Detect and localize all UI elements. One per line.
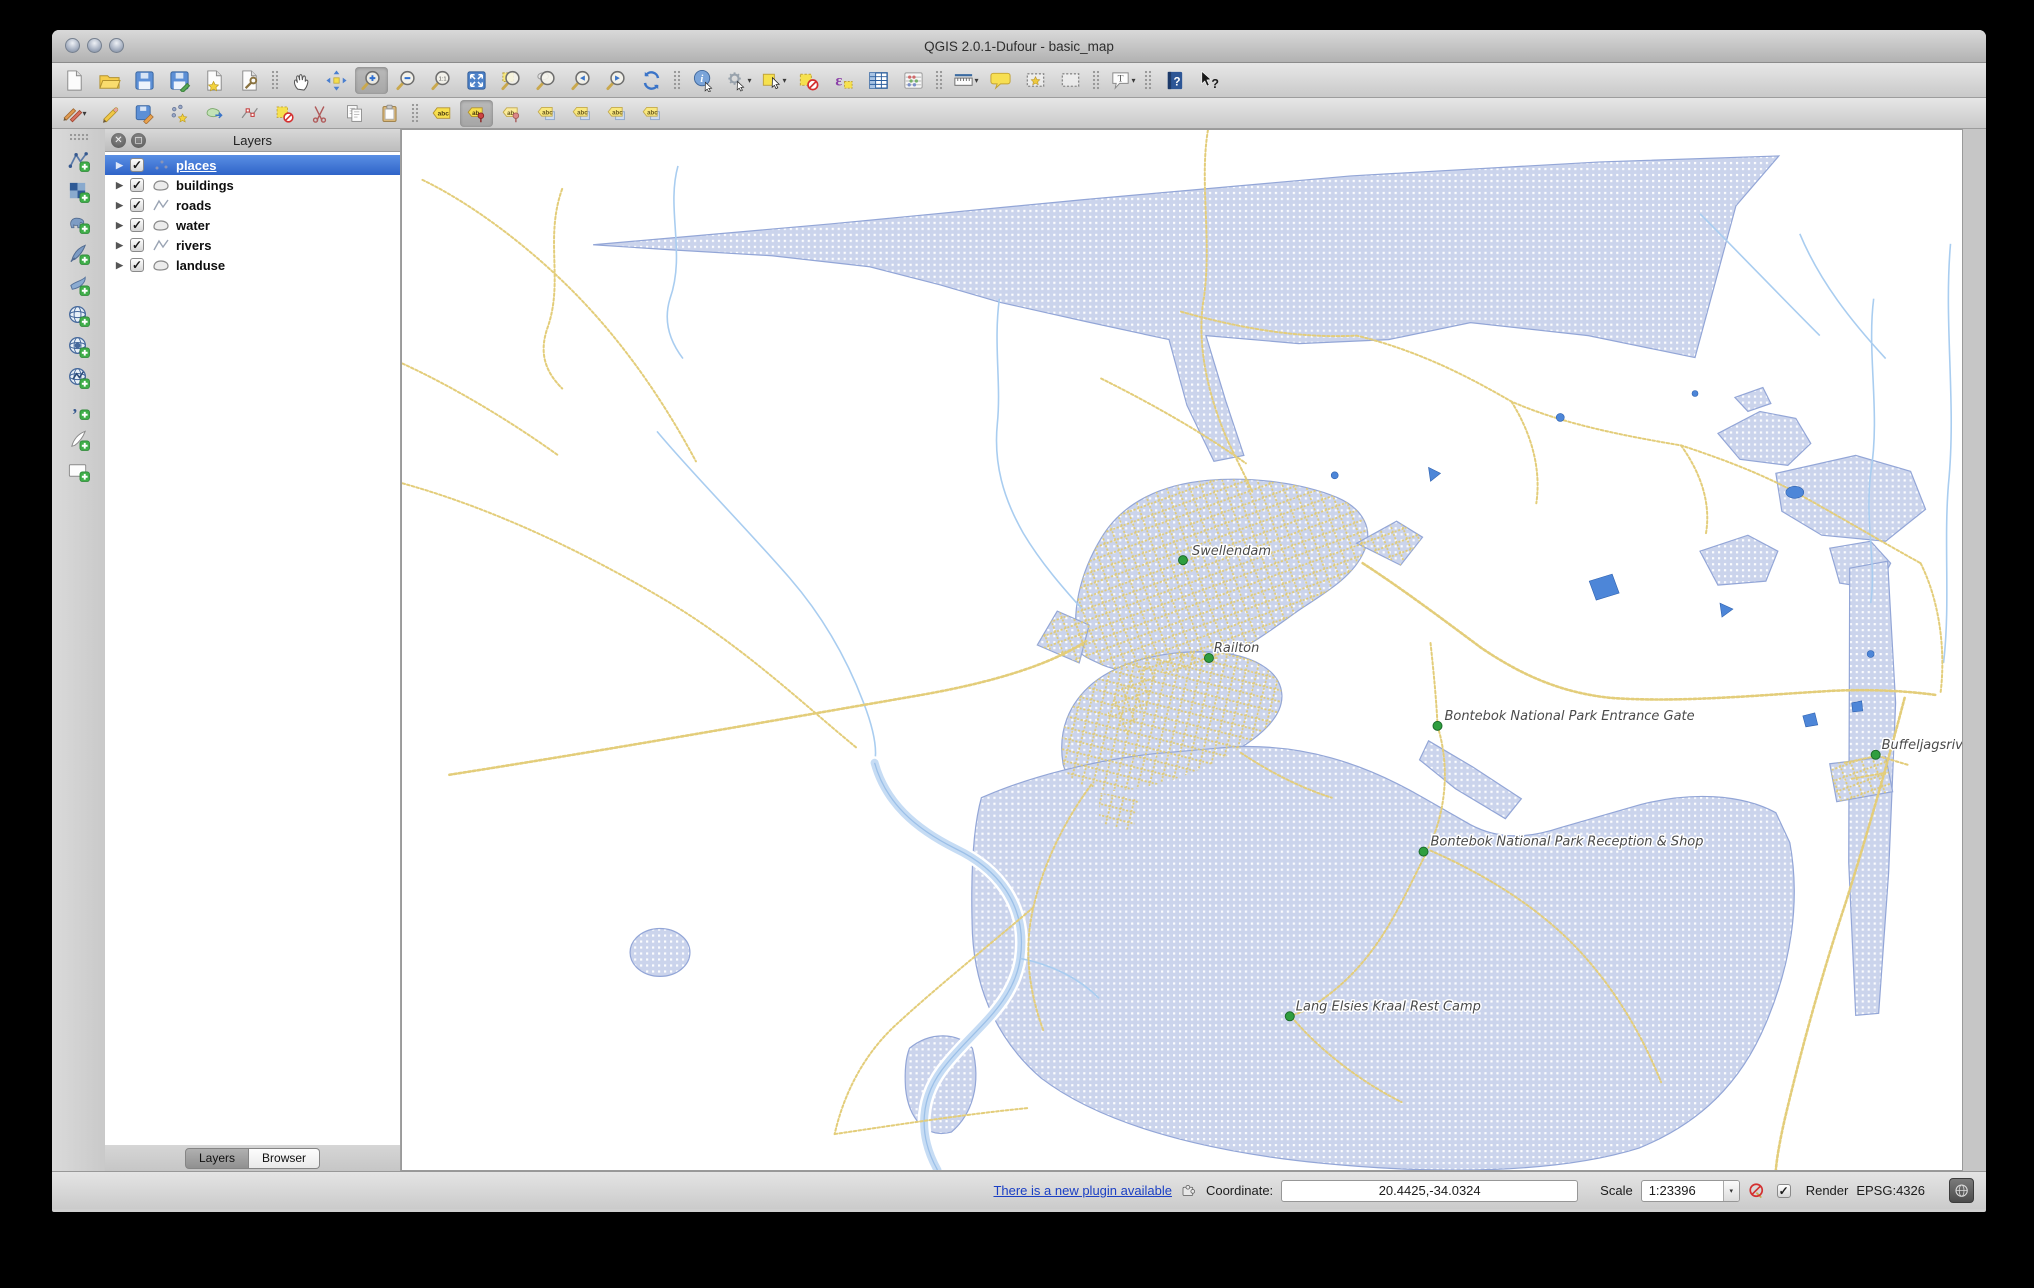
- layer-line-icon: [151, 238, 171, 252]
- coordinate-input[interactable]: 20.4425,-34.0324: [1281, 1180, 1578, 1202]
- open-attribute-table-button[interactable]: [862, 67, 895, 94]
- new-project-button[interactable]: [58, 67, 91, 94]
- pan-map-button[interactable]: [285, 67, 318, 94]
- chevron-down-icon: ▾: [1131, 76, 1135, 85]
- toolbar-drag-handle[interactable]: [271, 70, 280, 90]
- layer-checkbox[interactable]: ✓: [130, 218, 144, 232]
- map-tips-button[interactable]: [984, 67, 1017, 94]
- layer-item-roads[interactable]: ▶✓roads: [105, 195, 400, 215]
- layer-tree: ▶✓places▶✓buildings▶✓roads▶✓water▶✓river…: [105, 152, 400, 1145]
- layer-expand-arrow[interactable]: ▶: [112, 260, 127, 271]
- deselect-all-icon: [797, 69, 820, 92]
- toolbar-drag-handle[interactable]: [1092, 70, 1101, 90]
- toolbar-drag-handle[interactable]: [411, 103, 420, 123]
- labeling-options-button[interactable]: [425, 100, 458, 127]
- toolbar-drag-handle[interactable]: [673, 70, 682, 90]
- add-mssql-layer-icon: [67, 273, 90, 296]
- zoom-out-button[interactable]: [390, 67, 423, 94]
- place-marker: [1204, 653, 1213, 662]
- layer-line-icon: [151, 198, 171, 212]
- save-project-button[interactable]: [128, 67, 161, 94]
- qgis-window: QGIS 2.0.1-Dufour - basic_map ▾▾▾▾ ▾ ✕ ◻…: [52, 30, 1986, 1212]
- new-spatialite-layer-icon: [67, 428, 90, 451]
- change-label-properties-button[interactable]: [635, 100, 668, 127]
- zoom-full-icon: [465, 69, 488, 92]
- run-feature-action-button[interactable]: ▾: [722, 67, 755, 94]
- add-vector-layer-icon: [67, 149, 90, 172]
- delete-selected-icon: [274, 103, 295, 124]
- refresh-map-button[interactable]: [635, 67, 668, 94]
- add-mssql-layer-button[interactable]: [62, 271, 95, 298]
- show-pinned-labels-icon: [501, 103, 522, 124]
- save-layer-edits-button[interactable]: [128, 100, 161, 127]
- panel-float-button[interactable]: ◻: [131, 133, 146, 148]
- highlight-label-button[interactable]: [530, 100, 563, 127]
- layer-item-water[interactable]: ▶✓water: [105, 215, 400, 235]
- layer-label: roads: [176, 198, 211, 213]
- window-title: QGIS 2.0.1-Dufour - basic_map: [924, 39, 1114, 54]
- place-label: Railton: [1214, 641, 1259, 656]
- manage-layers-toolbar: [52, 129, 105, 1171]
- crs-label: EPSG:4326: [1856, 1183, 1925, 1198]
- help-icon: [1163, 69, 1186, 92]
- layer-expand-arrow[interactable]: ▶: [112, 220, 127, 231]
- measure-button[interactable]: ▾: [949, 67, 982, 94]
- main-toolbar: ▾▾▾▾: [52, 63, 1986, 98]
- pan-map-icon: [290, 69, 313, 92]
- move-label-button[interactable]: [565, 100, 598, 127]
- layer-label: water: [176, 218, 210, 233]
- minimize-window-button[interactable]: [87, 38, 102, 53]
- chevron-down-icon: ▾: [974, 76, 978, 85]
- rotate-label-icon: [606, 103, 627, 124]
- layer-label: rivers: [176, 238, 211, 253]
- toolbar-drag-handle[interactable]: [935, 70, 944, 90]
- panel-tabs: LayersBrowser: [105, 1145, 400, 1171]
- whats-this-icon: [1198, 69, 1221, 92]
- cut-features-icon: [309, 103, 330, 124]
- move-feature-button[interactable]: [198, 100, 231, 127]
- open-project-button[interactable]: [93, 67, 126, 94]
- layer-polygon-icon: [151, 178, 171, 192]
- add-wfs-layer-icon: [67, 366, 90, 389]
- layer-checkbox[interactable]: ✓: [130, 198, 144, 212]
- measure-icon: [952, 69, 975, 92]
- select-by-expression-button[interactable]: [827, 67, 860, 94]
- scale-combo[interactable]: 1:23396 ▾: [1641, 1180, 1740, 1202]
- zoom-to-selection-button[interactable]: [495, 67, 528, 94]
- save-project-as-icon: [168, 69, 191, 92]
- zoom-to-layer-icon: [535, 69, 558, 92]
- add-delimited-text-layer-button[interactable]: [62, 395, 95, 422]
- layers-panel-header: ✕ ◻ Layers: [105, 129, 400, 152]
- paste-features-icon: [379, 103, 400, 124]
- add-feature-button[interactable]: [163, 100, 196, 127]
- map-svg: SwellendamRailtonBontebok National Park …: [402, 130, 1962, 1170]
- new-bookmark-button[interactable]: [1019, 67, 1052, 94]
- panel-close-button[interactable]: ✕: [111, 133, 126, 148]
- labeling-options-icon: [431, 103, 452, 124]
- text-annotation-button[interactable]: ▾: [1106, 67, 1139, 94]
- node-tool-icon: [239, 103, 260, 124]
- chevron-down-icon: ▾: [747, 76, 751, 85]
- select-by-expression-icon: [832, 69, 855, 92]
- tab-layers[interactable]: Layers: [185, 1148, 249, 1169]
- place-label: Bontebok National Park Entrance Gate: [1444, 709, 1694, 724]
- layer-item-places[interactable]: ▶✓places: [105, 155, 400, 175]
- crs-status-button[interactable]: [1949, 1178, 1974, 1203]
- delete-selected-button[interactable]: [268, 100, 301, 127]
- move-feature-icon: [204, 103, 225, 124]
- rotate-label-button[interactable]: [600, 100, 633, 127]
- layer-label: places: [176, 158, 216, 173]
- current-edits-button[interactable]: ▾: [58, 100, 91, 127]
- pan-to-selection-button[interactable]: [320, 67, 353, 94]
- place-marker: [1871, 750, 1880, 759]
- pin-labels-icon: [466, 103, 487, 124]
- new-bookmark-icon: [1024, 69, 1047, 92]
- toggle-editing-button[interactable]: [93, 100, 126, 127]
- zoom-last-button[interactable]: [565, 67, 598, 94]
- toolbar-drag-handle[interactable]: [1144, 70, 1153, 90]
- place-label: Buffeljagsrivier: [1882, 738, 1962, 753]
- tab-browser[interactable]: Browser: [249, 1148, 320, 1169]
- open-attribute-table-icon: [867, 69, 890, 92]
- layers-panel-title: Layers: [151, 133, 354, 148]
- select-features-button[interactable]: ▾: [757, 67, 790, 94]
- layer-expand-arrow[interactable]: ▶: [112, 240, 127, 251]
- current-edits-icon: [62, 103, 83, 124]
- place-label: Lang Elsies Kraal Rest Camp: [1296, 999, 1481, 1014]
- close-window-button[interactable]: [65, 38, 80, 53]
- coordinate-label: Coordinate:: [1206, 1183, 1273, 1198]
- add-spatialite-layer-icon: [67, 242, 90, 265]
- copy-features-icon: [344, 103, 365, 124]
- place-marker: [1433, 721, 1442, 730]
- add-raster-layer-icon: [67, 180, 90, 203]
- title-bar[interactable]: QGIS 2.0.1-Dufour - basic_map: [52, 30, 1986, 63]
- show-bookmarks-button[interactable]: [1054, 67, 1087, 94]
- zoom-native-icon: [430, 69, 453, 92]
- window-controls: [65, 38, 124, 53]
- landuse-layer: [593, 156, 1925, 1170]
- save-layer-edits-icon: [134, 103, 155, 124]
- zoom-last-icon: [570, 69, 593, 92]
- save-project-icon: [133, 69, 156, 92]
- text-annotation-icon: [1109, 69, 1132, 92]
- zoom-window-button[interactable]: [109, 38, 124, 53]
- highlight-label-icon: [536, 103, 557, 124]
- plugin-update-link[interactable]: There is a new plugin available: [993, 1183, 1172, 1198]
- stop-rendering-button[interactable]: [1748, 1182, 1766, 1200]
- zoom-to-layer-button[interactable]: [530, 67, 563, 94]
- new-shapefile-layer-icon: [67, 459, 90, 482]
- zoom-out-icon: [395, 69, 418, 92]
- status-bar: There is a new plugin available Coordina…: [52, 1171, 1986, 1209]
- scale-value: 1:23396: [1642, 1181, 1723, 1201]
- identify-features-button[interactable]: [687, 67, 720, 94]
- layer-item-buildings[interactable]: ▶✓buildings: [105, 175, 400, 195]
- zoom-next-button[interactable]: [600, 67, 633, 94]
- place-label: Swellendam: [1192, 544, 1271, 559]
- add-wcs-layer-icon: [67, 335, 90, 358]
- identify-features-icon: [692, 69, 715, 92]
- layer-checkbox[interactable]: ✓: [130, 258, 144, 272]
- add-wms-layer-button[interactable]: [62, 302, 95, 329]
- layer-label: landuse: [176, 258, 225, 273]
- move-label-icon: [571, 103, 592, 124]
- layer-polygon-icon: [151, 218, 171, 232]
- toggle-editing-icon: [99, 103, 120, 124]
- render-label: Render: [1806, 1183, 1849, 1198]
- add-wfs-layer-button[interactable]: [62, 364, 95, 391]
- deselect-all-button[interactable]: [792, 67, 825, 94]
- scale-label: Scale: [1600, 1183, 1633, 1198]
- new-print-composer-button[interactable]: [198, 67, 231, 94]
- layers-panel: ✕ ◻ Layers ▶✓places▶✓buildings▶✓roads▶✓w…: [105, 129, 401, 1171]
- pin-labels-button[interactable]: [460, 100, 493, 127]
- layer-point-icon: [151, 158, 171, 172]
- render-checkbox[interactable]: ✓: [1777, 1184, 1791, 1198]
- paste-features-button[interactable]: [373, 100, 406, 127]
- node-tool-button[interactable]: [233, 100, 266, 127]
- add-postgis-layer-icon: [67, 211, 90, 234]
- layer-expand-arrow[interactable]: ▶: [112, 200, 127, 211]
- layer-expand-arrow[interactable]: ▶: [112, 180, 127, 191]
- run-feature-action-icon: [725, 69, 748, 92]
- show-bookmarks-icon: [1059, 69, 1082, 92]
- place-marker: [1285, 1012, 1294, 1021]
- new-project-icon: [63, 69, 86, 92]
- layer-item-rivers[interactable]: ▶✓rivers: [105, 235, 400, 255]
- add-wms-layer-icon: [67, 304, 90, 327]
- add-wcs-layer-button[interactable]: [62, 333, 95, 360]
- layer-checkbox[interactable]: ✓: [130, 158, 144, 172]
- whats-this-button[interactable]: [1193, 67, 1226, 94]
- globe-icon: [1953, 1182, 1971, 1200]
- place-label: Bontebok National Park Reception & Shop: [1431, 835, 1704, 850]
- add-feature-icon: [169, 103, 190, 124]
- new-shapefile-layer-button[interactable]: [62, 457, 95, 484]
- add-spatialite-layer-button[interactable]: [62, 240, 95, 267]
- add-postgis-layer-button[interactable]: [62, 209, 95, 236]
- change-label-properties-icon: [641, 103, 662, 124]
- field-calculator-icon: [902, 69, 925, 92]
- layer-item-landuse[interactable]: ▶✓landuse: [105, 255, 400, 275]
- toolbar-drag-handle[interactable]: [69, 133, 89, 141]
- copy-features-button[interactable]: [338, 100, 371, 127]
- zoom-next-icon: [605, 69, 628, 92]
- layer-label: buildings: [176, 178, 234, 193]
- layer-checkbox[interactable]: ✓: [130, 238, 144, 252]
- cut-features-button[interactable]: [303, 100, 336, 127]
- place-marker: [1179, 556, 1188, 565]
- map-canvas[interactable]: SwellendamRailtonBontebok National Park …: [401, 129, 1963, 1171]
- place-marker: [1419, 847, 1428, 856]
- composer-manager-icon: [238, 69, 261, 92]
- refresh-map-icon: [640, 69, 663, 92]
- layer-checkbox[interactable]: ✓: [130, 178, 144, 192]
- chevron-down-icon: ▾: [82, 109, 86, 118]
- save-project-as-button[interactable]: [163, 67, 196, 94]
- select-features-icon: [760, 69, 783, 92]
- composer-manager-button[interactable]: [233, 67, 266, 94]
- layer-polygon-icon: [151, 258, 171, 272]
- new-spatialite-layer-button[interactable]: [62, 426, 95, 453]
- plugin-icon[interactable]: [1180, 1182, 1198, 1200]
- show-pinned-labels-button[interactable]: [495, 100, 528, 127]
- add-delimited-text-layer-icon: [67, 397, 90, 420]
- zoom-in-icon: [360, 69, 383, 92]
- zoom-full-button[interactable]: [460, 67, 493, 94]
- open-project-icon: [98, 69, 121, 92]
- zoom-native-button[interactable]: [425, 67, 458, 94]
- pan-to-selection-icon: [325, 69, 348, 92]
- map-tips-icon: [989, 69, 1012, 92]
- chevron-down-icon: ▾: [782, 76, 786, 85]
- layer-expand-arrow[interactable]: ▶: [112, 160, 127, 171]
- zoom-in-button[interactable]: [355, 67, 388, 94]
- chevron-down-icon[interactable]: ▾: [1723, 1181, 1739, 1201]
- field-calculator-button[interactable]: [897, 67, 930, 94]
- zoom-to-selection-icon: [500, 69, 523, 92]
- new-print-composer-icon: [203, 69, 226, 92]
- add-raster-layer-button[interactable]: [62, 178, 95, 205]
- add-vector-layer-button[interactable]: [62, 147, 95, 174]
- help-button[interactable]: [1158, 67, 1191, 94]
- digitizing-labeling-toolbar: ▾: [52, 98, 1986, 129]
